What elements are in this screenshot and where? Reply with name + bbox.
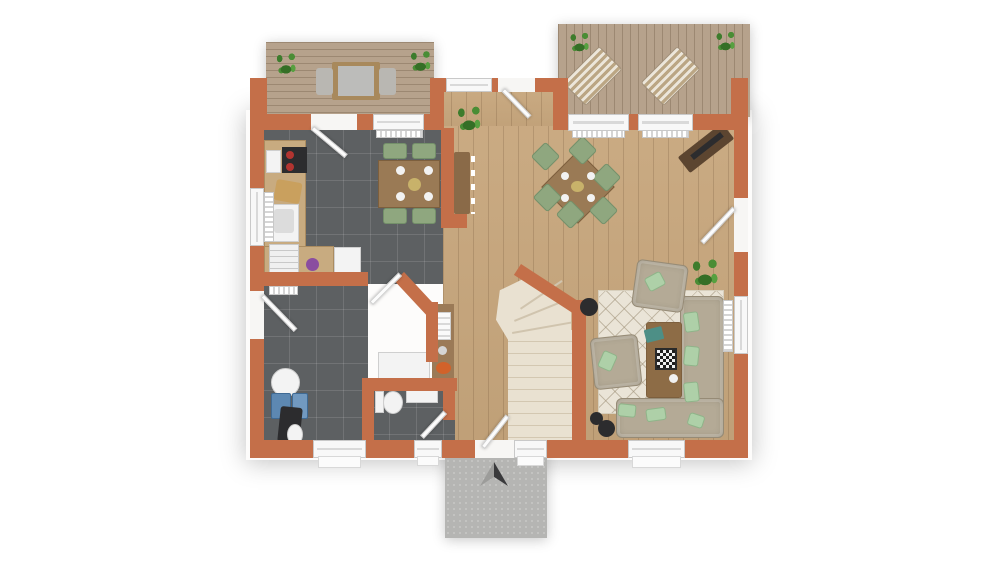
sofa-cushion-3 (683, 381, 700, 402)
plant-terrace-tl-2 (404, 44, 437, 79)
wall-left-exterior (250, 114, 264, 458)
living-right-radiator (723, 300, 733, 352)
sink-basin (274, 209, 294, 233)
living-room-plant (684, 250, 726, 296)
bump-top-window (446, 78, 492, 92)
plant-terrace-tr-2 (710, 25, 741, 58)
niche-towels (436, 312, 451, 340)
wall-right-exterior (734, 114, 748, 458)
dining-centerpiece (571, 181, 584, 192)
niche-bowl (436, 362, 451, 374)
kitchen-left-radiator (264, 192, 274, 242)
dining-plate-4 (587, 194, 595, 202)
sofa-cushion-5 (645, 407, 667, 423)
chess-board (655, 348, 677, 370)
sofa-cushion-2 (683, 345, 700, 366)
sofa-cushion-1 (683, 311, 701, 333)
kitchen-top-radiator (376, 130, 423, 138)
stairs-lower-flight (508, 330, 572, 452)
wall-kitchen-east (441, 128, 454, 222)
cooktop-burner-1 (286, 151, 294, 159)
kitchen-top-window (373, 114, 424, 130)
dining-plate-2 (587, 172, 595, 180)
dining-radiator-2 (642, 130, 689, 138)
living-right-door-opening (734, 198, 748, 252)
patio-table-top (338, 66, 374, 96)
kitchen-plate-1 (396, 166, 405, 175)
patio-chair-right (379, 68, 396, 95)
wall-stub-terrace-right (731, 78, 748, 116)
patio-chair-left (316, 68, 333, 95)
kitchen-blender (306, 258, 319, 271)
kitchen-chair-4 (412, 208, 436, 224)
hall-plant (450, 98, 488, 140)
kitchen-chair-1 (383, 143, 407, 159)
dining-plate-1 (561, 172, 569, 180)
coffee-table-vase (669, 374, 678, 383)
floorplan-stage (0, 0, 1000, 562)
armchair-left (589, 334, 642, 391)
kitchen-side-cabinet (266, 150, 281, 173)
kitchen-chair-3 (383, 208, 407, 224)
hall-wardrobe (454, 152, 470, 214)
terrace-glass-door-right (638, 114, 693, 131)
kitchen-plate-3 (396, 192, 405, 201)
kitchen-terrace-door-opening (311, 114, 357, 130)
cooktop-burner-2 (286, 163, 294, 171)
wall-kitchen-south (262, 272, 368, 286)
hall-window-sill (517, 456, 544, 466)
utility-window-sill (318, 456, 361, 468)
wardrobe-door-dashes (471, 156, 475, 214)
kitchen-chair-2 (412, 143, 436, 159)
plant-terrace-tl-1 (270, 46, 302, 82)
niche-jar (438, 346, 447, 355)
utility-radiator (269, 286, 298, 295)
kitchen-plate-2 (424, 166, 433, 175)
sofa-cushion-6 (617, 403, 636, 418)
wall-kitchen-stub (441, 214, 467, 228)
living-window-sill (632, 456, 681, 468)
plant-terrace-tr-1 (564, 26, 595, 59)
wc-toilet-bowl (383, 391, 403, 414)
dining-plate-3 (561, 194, 569, 202)
living-right-window (734, 296, 748, 354)
wall-stub-terrace-left (250, 78, 267, 116)
front-door-opening (475, 440, 514, 458)
wc-window-sill (417, 456, 439, 466)
kitchen-plate-4 (424, 192, 433, 201)
kitchen-centerpiece (408, 178, 421, 191)
wall-stairs-right (572, 300, 586, 452)
terrace-glass-door-left (568, 114, 629, 131)
stair-newel-post (580, 298, 598, 316)
dining-radiator-1 (572, 130, 625, 138)
side-stool-large (598, 420, 615, 437)
kitchen-left-window (250, 188, 264, 246)
cutting-board (273, 179, 302, 204)
wall-niche-west (426, 302, 438, 362)
